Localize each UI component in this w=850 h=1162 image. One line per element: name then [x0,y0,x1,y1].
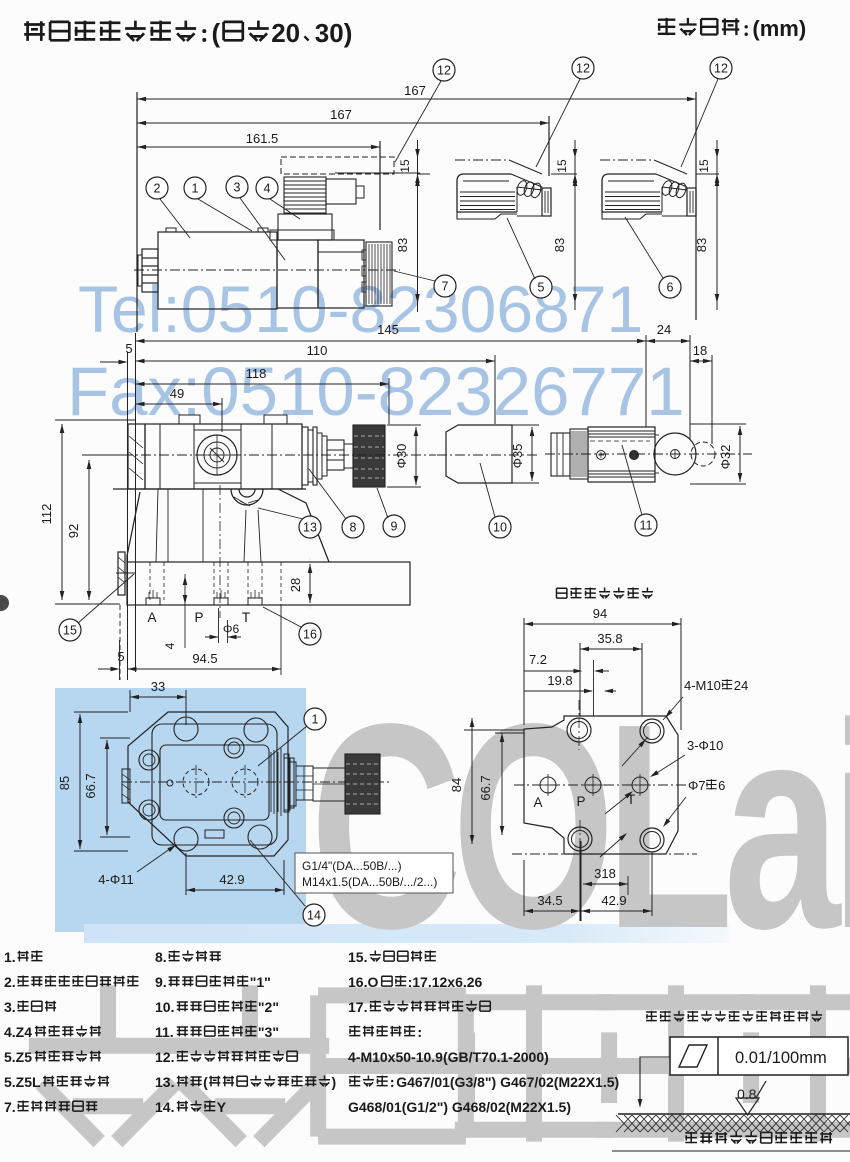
svg-text:94.5: 94.5 [192,651,217,666]
svg-text:4: 4 [264,182,271,196]
svg-text:"2": "2" [258,999,279,1015]
svg-text:85: 85 [57,776,72,790]
svg-text:Φ30: Φ30 [394,444,409,469]
svg-text:9.: 9. [155,974,167,990]
svg-text:83: 83 [552,238,567,252]
svg-text:4: 4 [163,642,177,649]
svg-text:): ) [332,1074,337,1090]
svg-text:24: 24 [657,322,671,337]
svg-text:P: P [194,610,203,625]
svg-text:35.8: 35.8 [597,631,622,646]
svg-text:4-M10: 4-M10 [684,678,721,693]
svg-text:161.5: 161.5 [246,131,279,146]
svg-text:14: 14 [307,909,321,923]
svg-text:12: 12 [576,62,590,76]
svg-text:10: 10 [493,521,507,535]
svg-text:20: 20 [271,18,300,48]
svg-text:42.9: 42.9 [601,893,626,908]
svg-text:3-Φ10: 3-Φ10 [687,738,723,753]
svg-text:18: 18 [693,343,707,358]
svg-text:2.: 2. [4,974,16,990]
svg-text:3.: 3. [4,999,16,1015]
svg-text:8.: 8. [155,949,167,965]
svg-text:5.Z5L: 5.Z5L [4,1074,41,1090]
svg-text:Φ35: Φ35 [510,444,525,469]
svg-text:(: ( [212,18,221,48]
svg-text:G467/01(G3/8") G467/02(M22X1.5: G467/01(G3/8") G467/02(M22X1.5) [396,1074,619,1090]
svg-text:2: 2 [154,182,161,196]
svg-text:Φ6: Φ6 [223,622,240,636]
svg-text:167: 167 [330,107,352,122]
svg-text:15: 15 [398,159,412,173]
svg-text:16: 16 [303,628,317,642]
svg-text:15: 15 [697,159,711,173]
svg-text:17.: 17. [348,999,367,1015]
svg-text:24: 24 [734,678,748,693]
svg-text:5: 5 [117,649,124,664]
svg-text:167: 167 [404,83,426,98]
svg-text:1.: 1. [4,949,16,965]
svg-text:4-M10x50-10.9(GB/T70.1-2000): 4-M10x50-10.9(GB/T70.1-2000) [348,1049,549,1065]
svg-text:110: 110 [307,343,328,358]
svg-text:G468/01(G1/2") G468/02(M22X1.5: G468/01(G1/2") G468/02(M22X1.5) [348,1099,571,1115]
svg-text:9: 9 [391,520,398,534]
svg-text:(: ( [203,1074,208,1090]
svg-text:7: 7 [442,280,449,294]
svg-text:12: 12 [437,64,451,78]
svg-text:6: 6 [718,778,725,793]
svg-text:5: 5 [538,281,545,295]
svg-text:145: 145 [377,322,399,337]
svg-text:83: 83 [694,238,709,252]
svg-text:"3": "3" [258,1024,279,1040]
svg-text:13.: 13. [155,1074,174,1090]
svg-text:11.: 11. [155,1024,174,1040]
svg-text:318: 318 [594,866,616,881]
svg-text:Fax:0510-82326771: Fax:0510-82326771 [67,353,685,430]
svg-text:0.01/100mm: 0.01/100mm [735,1049,827,1067]
svg-text:15: 15 [63,624,77,638]
svg-text:12.: 12. [155,1049,174,1065]
svg-text:14.: 14. [155,1099,174,1115]
svg-text:G1/4"(DA...50B/...): G1/4"(DA...50B/...) [302,859,402,873]
svg-text:8: 8 [350,521,357,535]
svg-text:30): 30) [315,18,353,48]
svg-text:7.2: 7.2 [529,652,547,667]
svg-text:Φ7: Φ7 [688,778,706,793]
svg-text:6: 6 [667,281,674,295]
svg-text:11: 11 [640,519,653,533]
svg-text:5: 5 [125,341,132,356]
svg-text:94: 94 [593,606,607,621]
svg-text:Φ32: Φ32 [718,445,733,470]
svg-text:118: 118 [246,366,267,381]
svg-text:T: T [242,610,250,625]
svg-text:12: 12 [714,62,728,76]
svg-text:A: A [533,795,542,810]
svg-text:15.: 15. [348,949,367,965]
svg-text:4-Φ11: 4-Φ11 [98,872,133,887]
svg-text:7.: 7. [4,1099,16,1115]
svg-text:19.8: 19.8 [547,673,572,688]
svg-text:A: A [147,610,156,625]
svg-text:3: 3 [234,181,241,195]
svg-text:28: 28 [288,578,303,592]
svg-text:5.Z5: 5.Z5 [4,1049,32,1065]
svg-text:66.7: 66.7 [478,775,493,800]
svg-text:83: 83 [395,238,410,252]
svg-text:P: P [576,794,585,809]
svg-text:33: 33 [151,679,165,694]
svg-text:15: 15 [555,159,569,173]
svg-text:0.8: 0.8 [737,1086,757,1102]
svg-text:1: 1 [192,182,199,196]
svg-text::17.12x6.26: :17.12x6.26 [408,974,483,990]
svg-text:16.O: 16.O [348,974,378,990]
svg-text:84: 84 [449,778,464,792]
svg-text:13: 13 [303,521,317,535]
svg-text:42.9: 42.9 [219,872,244,887]
svg-text:4.Z4: 4.Z4 [4,1024,32,1040]
svg-text:34.5: 34.5 [537,893,562,908]
svg-text:M14x1.5(DA...50B/.../2...): M14x1.5(DA...50B/.../2...) [302,875,437,889]
svg-text:66.7: 66.7 [83,773,98,798]
svg-text:(mm): (mm) [752,16,806,41]
svg-text:10.: 10. [155,999,174,1015]
svg-text:1: 1 [312,713,319,727]
svg-text:Y: Y [217,1099,227,1115]
svg-text:49: 49 [170,386,184,401]
svg-text:"1": "1" [250,974,271,990]
svg-text:112: 112 [39,504,54,525]
svg-text:92: 92 [66,524,81,538]
